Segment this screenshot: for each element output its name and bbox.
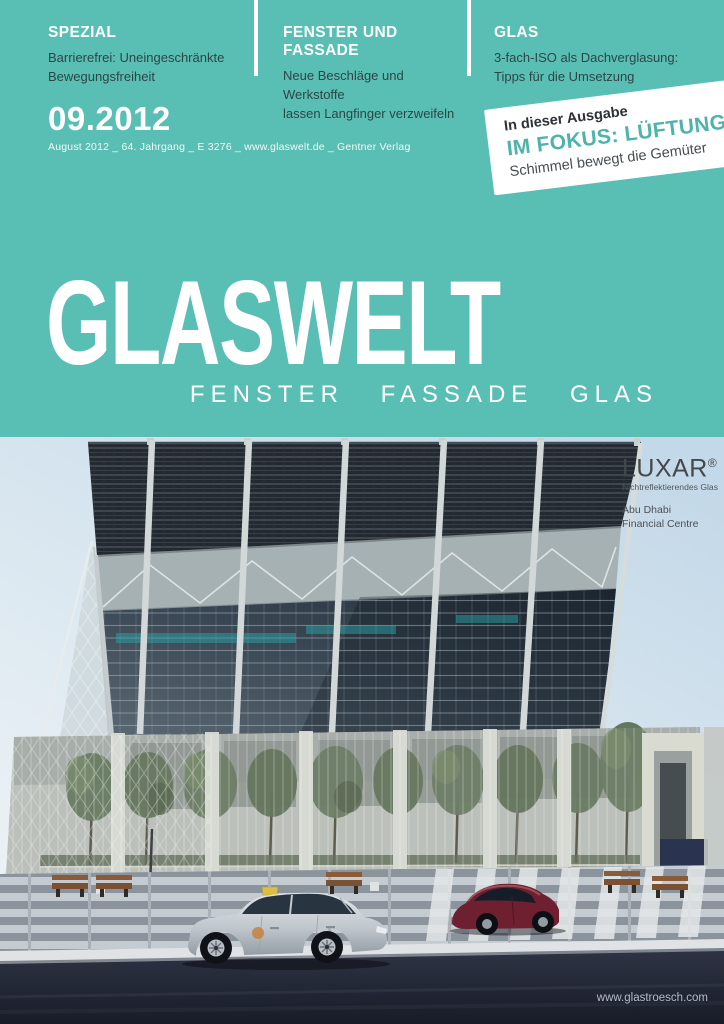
topic-text-line: Neue Beschläge und Werkstoffe (283, 66, 468, 104)
topic-text-line: 3-fach-ISO als Dachverglasung: (494, 48, 704, 67)
website-url: www.glastroesch.com (597, 992, 708, 1004)
building-curtain-wall (103, 589, 616, 735)
issue-block: 09.2012 August 2012 _ 64. Jahrgang _ E 3… (48, 102, 410, 153)
issue-meta: August 2012 _ 64. Jahrgang _ E 3276 _ ww… (48, 141, 410, 153)
cover-photo-illustration (0, 437, 724, 1024)
column-divider (254, 0, 258, 76)
magazine-tagline: FENSTER FASSADE GLAS (190, 381, 658, 409)
focus-badge: In dieser Ausgabe IM FOKUS: LÜFTUNG Schi… (484, 69, 724, 195)
building (88, 438, 641, 735)
issue-number: 09.2012 (48, 102, 410, 136)
magazine-cover: SPEZIAL Barrierefrei: Uneingeschränkte B… (0, 0, 724, 1024)
luxar-ad: LUXAR® Nichtreflektierendes Glas Abu Dha… (622, 450, 722, 531)
topic-label: GLAS (494, 24, 704, 42)
luxar-brand: LUXAR® (622, 450, 722, 481)
luxar-location: Abu Dhabi Financial Centre (622, 503, 722, 531)
topic-text-line: Tipps für die Umsetzung (494, 67, 704, 86)
ground-floor (6, 722, 724, 889)
topic-spezial: SPEZIAL Barrierefrei: Uneingeschränkte B… (48, 24, 248, 86)
topic-text-line: Bewegungsfreiheit (48, 67, 248, 86)
topic-text-line: Barrierefrei: Uneingeschränkte (48, 48, 248, 67)
cover-photo: LUXAR® Nichtreflektierendes Glas Abu Dha… (0, 437, 724, 1024)
magazine-title: GLASWELT (46, 263, 500, 383)
registered-mark: ® (708, 456, 717, 470)
topic-label: FENSTER UND FASSADE (283, 24, 468, 60)
topic-glas: GLAS 3-fach-ISO als Dachverglasung: Tipp… (494, 24, 704, 86)
luxar-product: Nichtreflektierendes Glas (622, 482, 722, 492)
topic-label: SPEZIAL (48, 24, 248, 42)
